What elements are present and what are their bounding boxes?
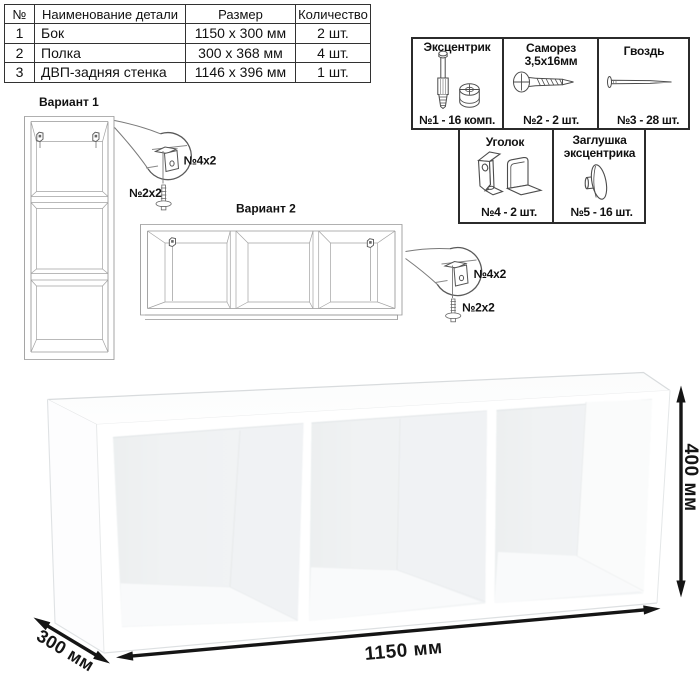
- svg-text:№4х2: №4х2: [474, 267, 507, 281]
- svg-text:Вариант 1: Вариант 1: [39, 95, 99, 109]
- svg-text:№2х2: №2х2: [462, 301, 495, 315]
- svg-text:Вариант 2: Вариант 2: [236, 202, 296, 216]
- svg-text:1150 мм: 1150 мм: [364, 637, 444, 665]
- svg-text:400 мм: 400 мм: [680, 443, 700, 511]
- svg-text:№2х2: №2х2: [129, 186, 162, 200]
- svg-text:№4х2: №4х2: [184, 154, 217, 168]
